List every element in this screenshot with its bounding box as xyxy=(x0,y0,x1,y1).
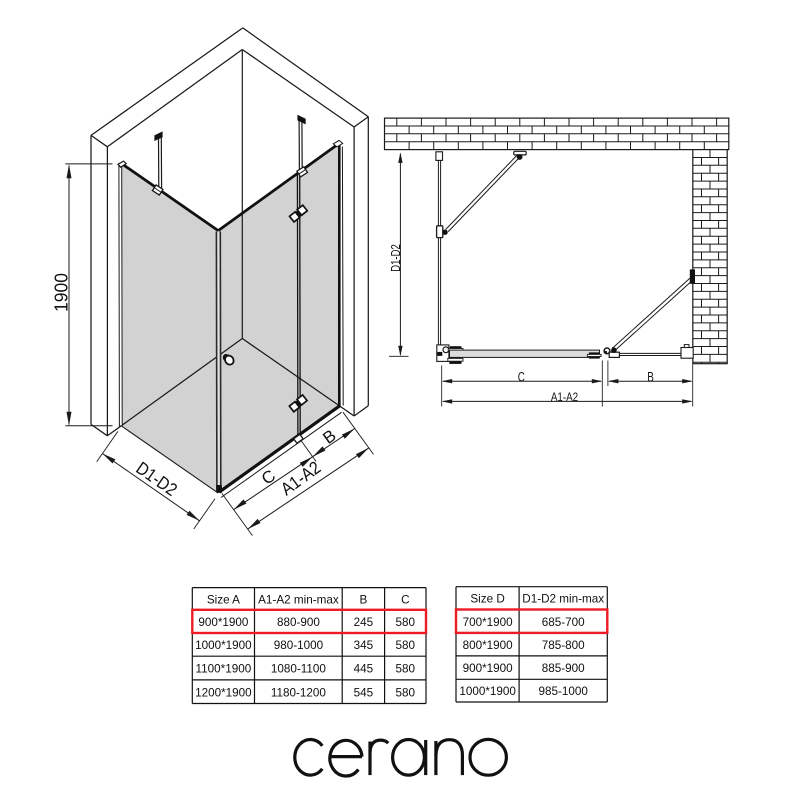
svg-text:885-900: 885-900 xyxy=(542,662,585,675)
svg-text:Size A: Size A xyxy=(207,593,240,606)
svg-text:980-1000: 980-1000 xyxy=(274,639,324,652)
svg-text:1000*1900: 1000*1900 xyxy=(195,639,252,652)
svg-text:985-1000: 985-1000 xyxy=(538,685,588,698)
svg-text:685-700: 685-700 xyxy=(542,616,585,629)
svg-text:1000*1900: 1000*1900 xyxy=(459,685,516,698)
svg-text:A1-A2 min-max: A1-A2 min-max xyxy=(258,593,339,606)
svg-text:580: 580 xyxy=(396,663,416,676)
svg-text:Size D: Size D xyxy=(470,593,504,606)
svg-text:1180-1200: 1180-1200 xyxy=(271,686,327,699)
svg-text:900*1900: 900*1900 xyxy=(198,616,249,629)
svg-text:1100*1900: 1100*1900 xyxy=(196,663,252,676)
svg-text:800*1900: 800*1900 xyxy=(463,639,514,652)
svg-text:D1-D2 min-max: D1-D2 min-max xyxy=(522,593,604,606)
svg-text:1900: 1900 xyxy=(52,273,72,312)
svg-text:B: B xyxy=(360,593,368,606)
svg-text:580: 580 xyxy=(396,686,416,699)
svg-text:1200*1900: 1200*1900 xyxy=(195,686,252,699)
svg-text:880-900: 880-900 xyxy=(277,616,320,629)
svg-text:580: 580 xyxy=(396,639,416,652)
svg-text:245: 245 xyxy=(354,616,374,629)
svg-text:D1-D2: D1-D2 xyxy=(132,458,180,500)
svg-text:580: 580 xyxy=(396,616,416,629)
svg-text:B: B xyxy=(647,370,654,385)
svg-text:700*1900: 700*1900 xyxy=(463,616,514,629)
svg-text:545: 545 xyxy=(354,686,374,699)
svg-text:C: C xyxy=(401,593,409,606)
svg-text:1080-1100: 1080-1100 xyxy=(271,663,327,676)
svg-text:D1-D2: D1-D2 xyxy=(388,244,403,272)
svg-text:C: C xyxy=(518,370,526,385)
svg-text:445: 445 xyxy=(354,663,374,676)
svg-text:B: B xyxy=(319,426,339,448)
svg-text:785-800: 785-800 xyxy=(542,639,585,652)
svg-text:A1-A2: A1-A2 xyxy=(551,390,579,404)
svg-text:900*1900: 900*1900 xyxy=(463,662,514,675)
svg-text:345: 345 xyxy=(354,639,374,652)
